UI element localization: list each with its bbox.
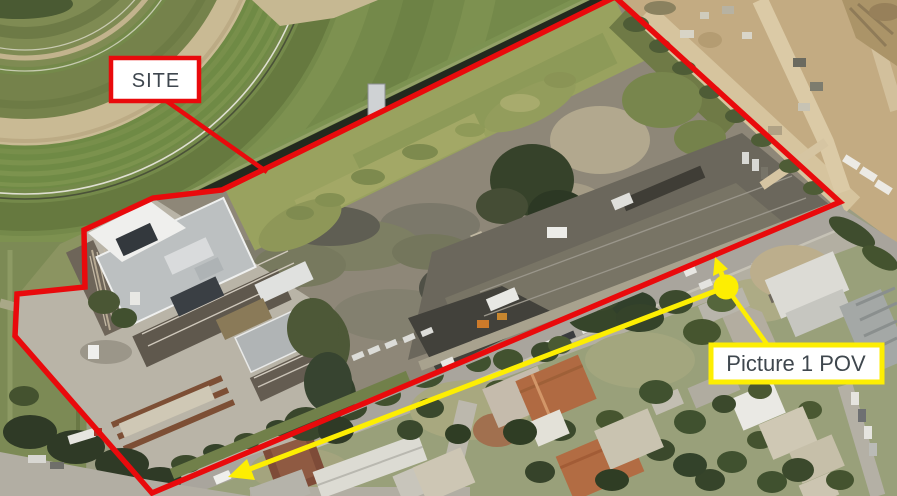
svg-text:Picture 1 POV: Picture 1 POV [726, 351, 866, 376]
svg-text:SITE: SITE [132, 70, 180, 92]
